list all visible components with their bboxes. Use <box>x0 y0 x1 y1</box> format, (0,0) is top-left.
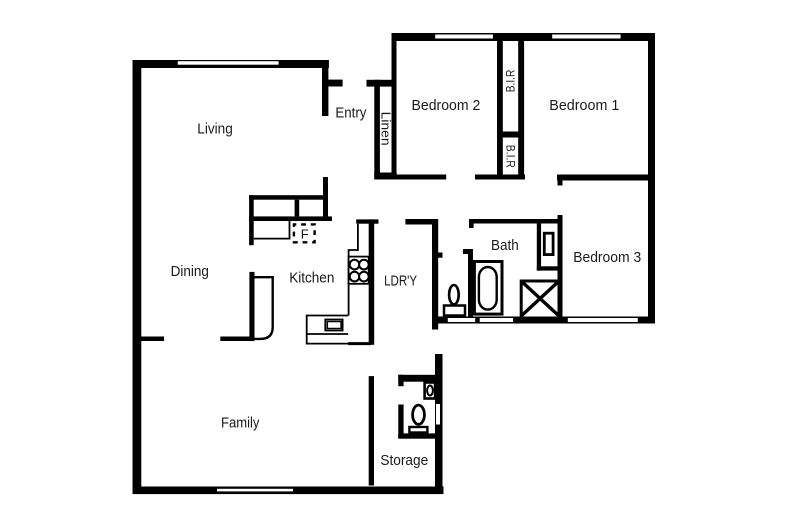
svg-text:B.I.R: B.I.R <box>504 145 518 168</box>
svg-text:F: F <box>301 226 309 241</box>
svg-text:Bedroom 1: Bedroom 1 <box>549 97 619 114</box>
svg-text:Linen: Linen <box>379 112 394 146</box>
svg-text:Bedroom 3: Bedroom 3 <box>573 249 641 266</box>
svg-text:Bath: Bath <box>491 237 519 254</box>
svg-text:Storage: Storage <box>380 452 428 469</box>
svg-text:LDR'Y: LDR'Y <box>384 273 417 290</box>
svg-text:Bedroom 2: Bedroom 2 <box>412 97 481 114</box>
svg-text:Living: Living <box>197 121 233 138</box>
svg-text:Dining: Dining <box>171 263 209 280</box>
svg-text:Entry: Entry <box>335 105 366 122</box>
svg-text:Family: Family <box>221 415 260 432</box>
svg-text:Kitchen: Kitchen <box>289 270 334 287</box>
svg-text:B.I.R: B.I.R <box>504 69 518 92</box>
